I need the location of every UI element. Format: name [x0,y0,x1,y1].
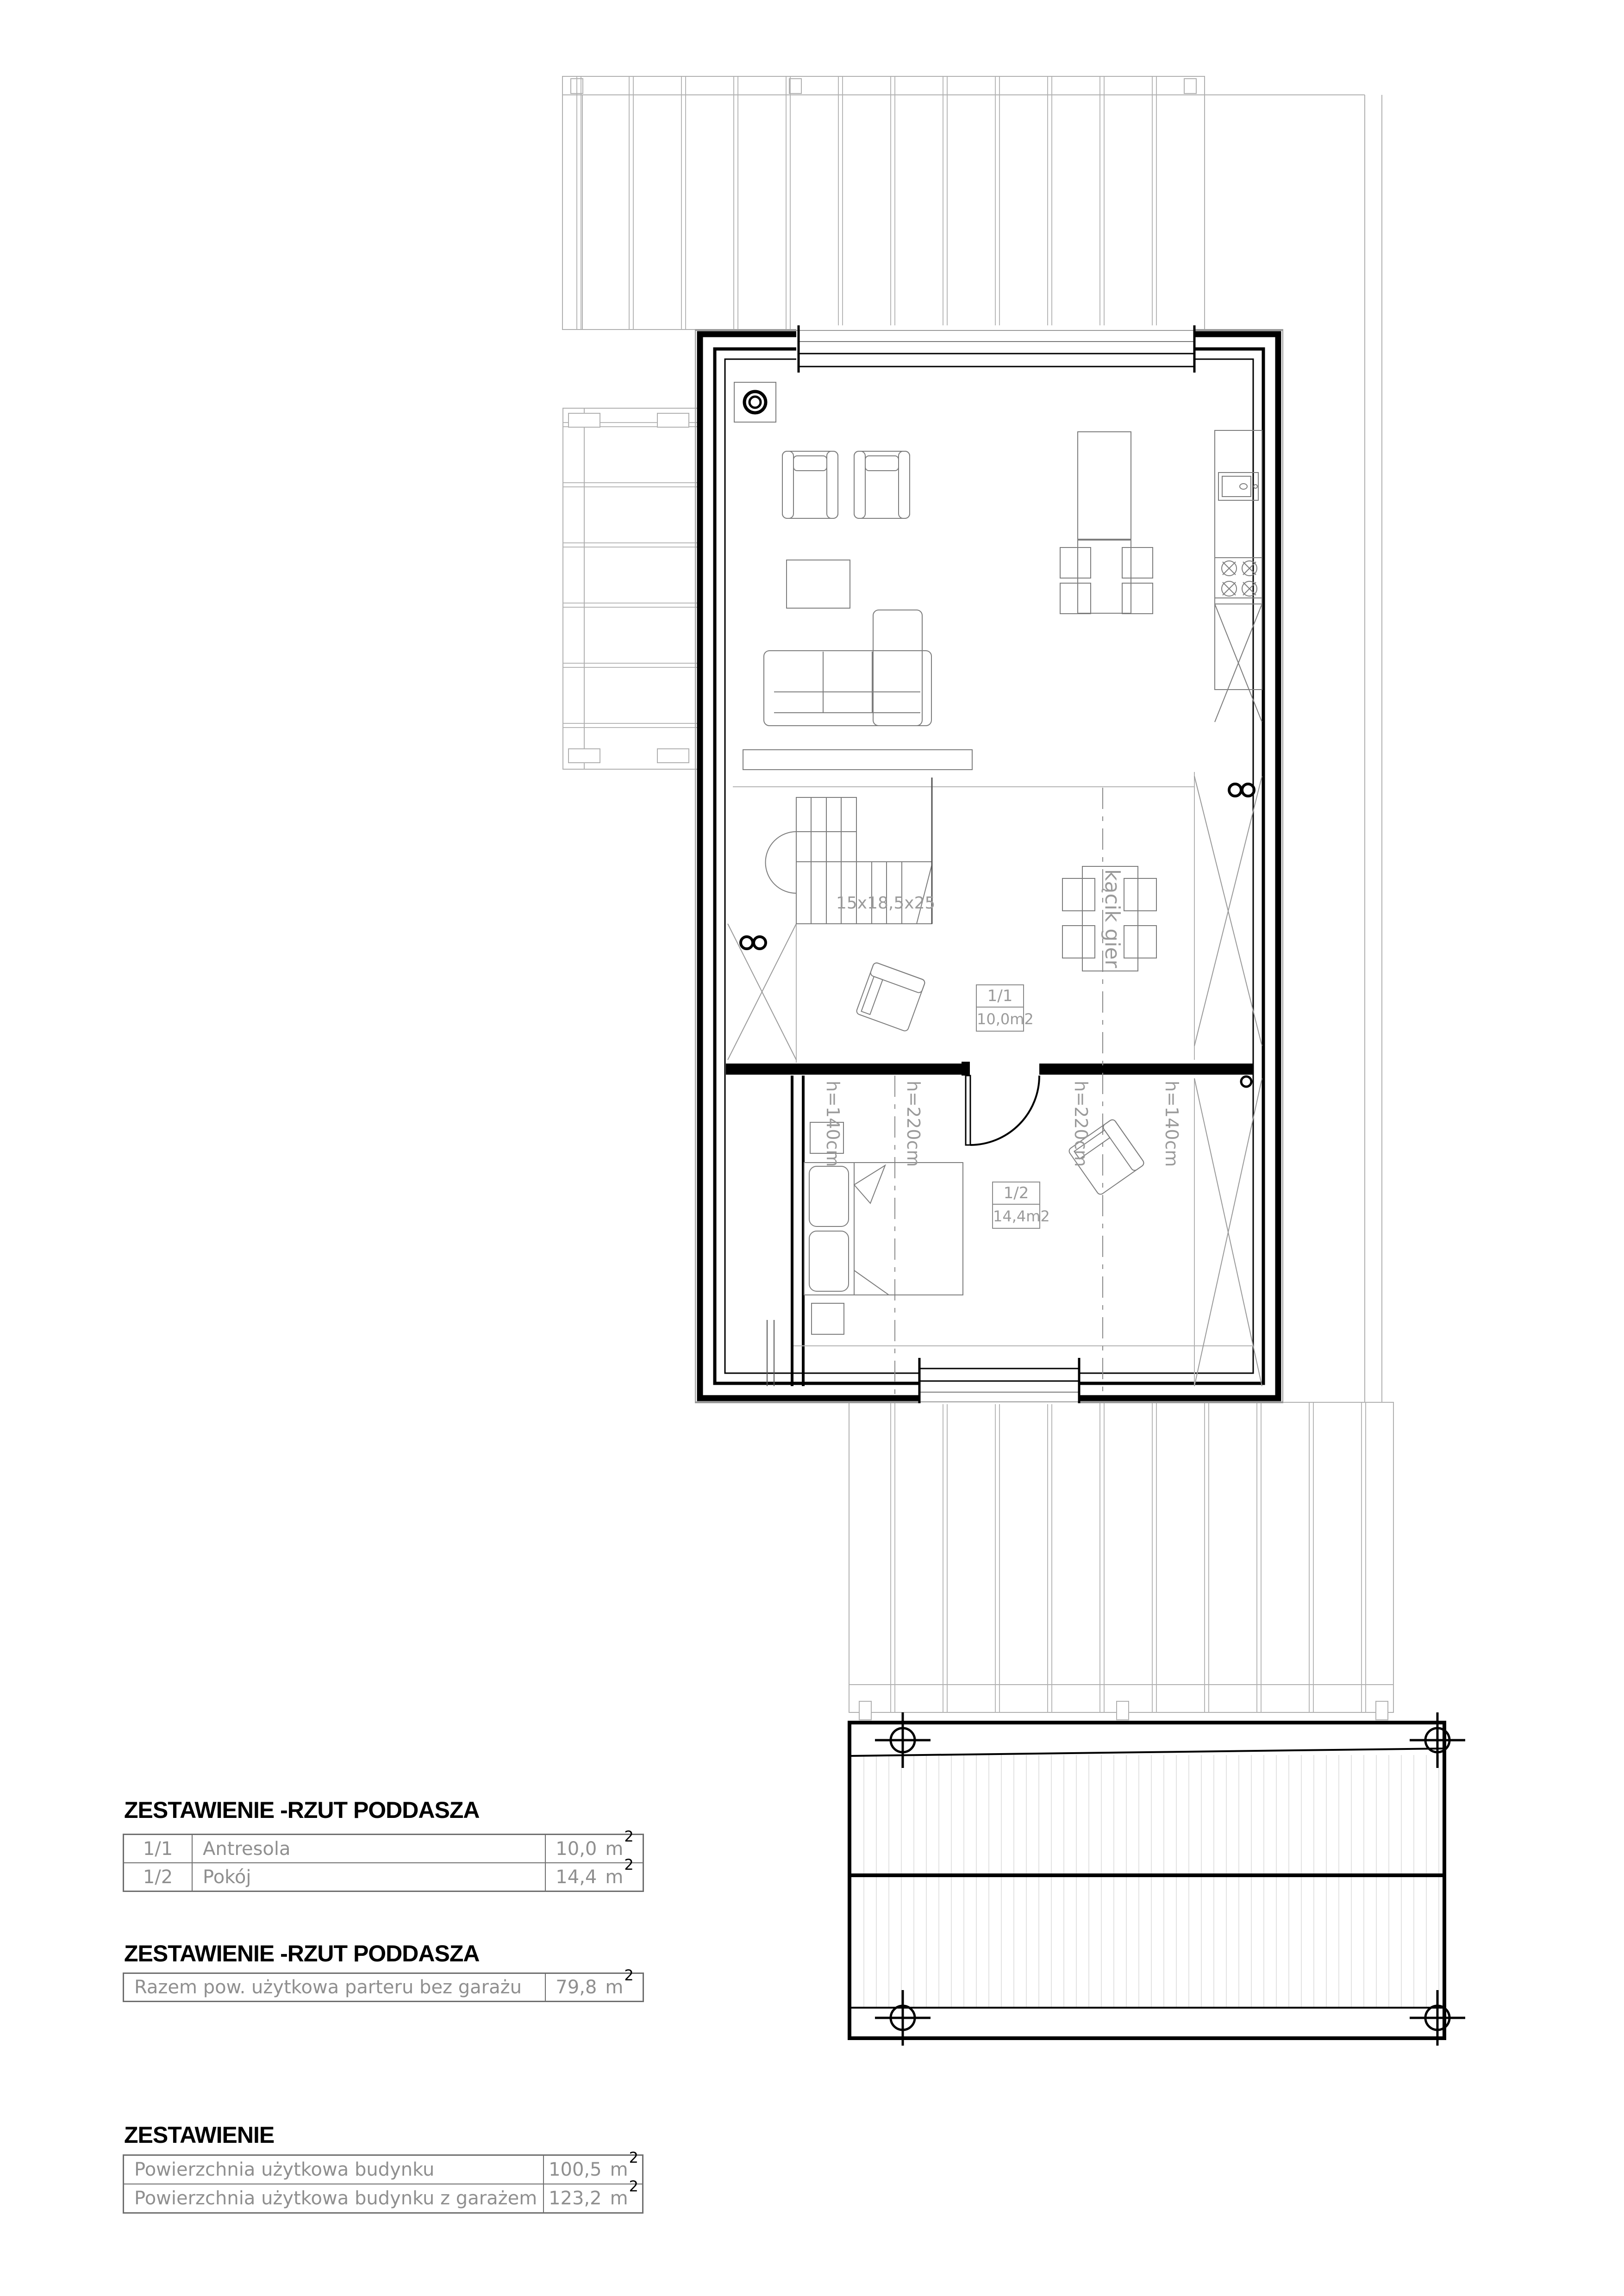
sofa [764,610,931,726]
row-name: Razem pow. użytkowa parteru bez garażu [124,1974,546,2001]
chimney-icon [734,382,776,422]
game-corner-label: kącik gier [1102,869,1122,968]
armchair [856,962,925,1032]
roof-left-plane [563,408,700,769]
height-label: h=220cm [905,1081,922,1167]
row-number: 1/2 [124,1863,193,1891]
sideboard [743,750,972,770]
height-label: h=140cm [824,1081,842,1167]
area-value: 10,0 [556,1838,597,1860]
room-area: 14,4m2 [993,1205,1039,1228]
area-value: 123,2 [549,2188,602,2209]
room-tag-antresola: 1/1 10,0m2 [976,984,1024,1032]
legend-title-3: ZESTAWIENIE [124,2122,274,2148]
room-area: 10,0m2 [977,1008,1023,1031]
kitchen-counter [1215,430,1262,722]
table-row: 1/1 Antresola 10,0 m2 [124,1835,643,1863]
legend-title-1: ZESTAWIENIE -RZUT PODDASZA [124,1797,480,1823]
area-value: 14,4 [556,1867,597,1888]
partition-wall [726,1062,1253,1076]
stair-steps-label: 15x18,5x25 [836,895,935,912]
area-unit: m2 [605,1867,632,1888]
knee-wall [767,1076,805,1386]
coffee-table [787,560,850,608]
row-area: 79,8 m2 [546,1974,643,2001]
armchair [782,451,838,518]
room-number: 1/1 [977,985,1023,1008]
table-row: Razem pow. użytkowa parteru bez garażu 7… [124,1974,643,2001]
dining-table [1060,539,1153,614]
room-number: 1/2 [993,1182,1039,1205]
nightstand [812,1303,844,1334]
area-unit: m2 [610,2188,637,2209]
height-label: h=140cm [1163,1081,1181,1167]
row-area: 14,4 m2 [546,1863,643,1891]
area-value: 100,5 [549,2159,602,2180]
roof-bottom-plane [849,1402,1393,1720]
room-tag-pokoj: 1/2 14,4m2 [992,1182,1040,1229]
row-name: Powierzchnia użytkowa budynku [124,2156,544,2184]
stove-burner-icon [1222,561,1257,596]
armchair [854,451,910,518]
garage-roof [849,1712,1465,2046]
table-row: Powierzchnia użytkowa budynku z garażem … [124,2184,642,2212]
door-swing [966,1076,1039,1145]
legend-table-2: Razem pow. użytkowa parteru bez garażu 7… [123,1972,644,2002]
row-number: 1/1 [124,1835,193,1862]
table-row: 1/2 Pokój 14,4 m2 [124,1863,643,1891]
kitchen-island [1078,432,1131,540]
legend-title-2: ZESTAWIENIE -RZUT PODDASZA [124,1940,480,1967]
pipe-icon [1241,1076,1251,1087]
floor-plan-sheet: 15x18,5x25 kącik gier h=140cm h=220cm h=… [0,0,1624,2296]
table-row: Powierzchnia użytkowa budynku 100,5 m2 [124,2156,642,2184]
area-unit: m2 [605,1977,632,1998]
row-area: 100,5 m2 [544,2156,642,2184]
vent-icon [1229,784,1254,796]
area-value: 79,8 [556,1977,597,1998]
row-name: Antresola [193,1835,546,1862]
bed [804,1163,963,1295]
row-name: Pokój [193,1863,546,1891]
row-name: Powierzchnia użytkowa budynku z garażem [124,2184,544,2212]
vent-icon [741,937,766,949]
legend-table-1: 1/1 Antresola 10,0 m2 1/2 Pokój 14,4 m2 [123,1834,644,1892]
height-label: h=220cm [1072,1081,1090,1167]
row-area: 123,2 m2 [544,2184,642,2212]
legend-table-3: Powierzchnia użytkowa budynku 100,5 m2 P… [123,2154,643,2214]
